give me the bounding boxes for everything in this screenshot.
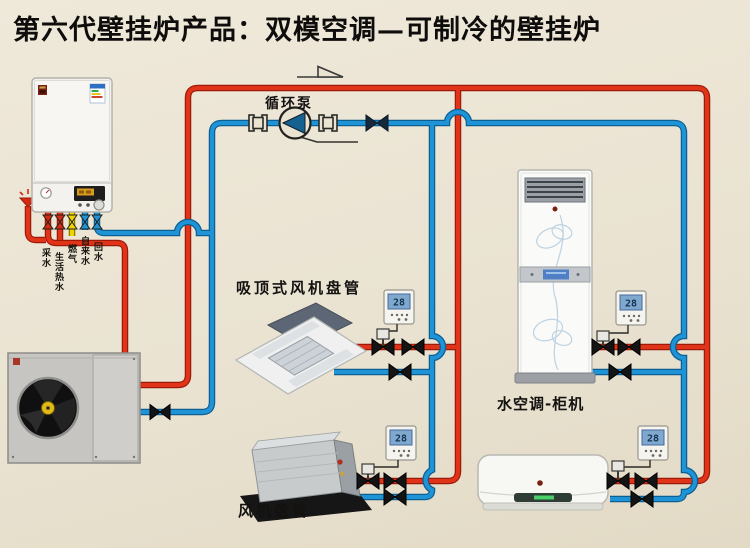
diagram-page: 第六代壁挂炉产品：双模空调—可制冷的壁挂炉 <box>0 0 750 548</box>
fan-icon <box>18 378 78 438</box>
split-logo <box>537 480 543 486</box>
split-display <box>514 493 572 502</box>
cabinet-unit-label: 水空调-柜机 <box>497 393 584 414</box>
wall-split-ac-unit <box>478 455 608 510</box>
valve-icon <box>150 405 170 420</box>
thermostat-wall-split: 28 <box>638 426 668 460</box>
heat-pump-logo <box>13 358 20 365</box>
boiler-logo <box>38 85 47 95</box>
heat-pump-unit <box>8 353 140 463</box>
thermostat-cabinet: 28 <box>616 291 646 325</box>
svg-text:28: 28 <box>625 299 637 310</box>
svg-text:28: 28 <box>647 434 659 445</box>
pump-label: 循环泵 <box>265 93 313 113</box>
svg-text:28: 28 <box>395 434 407 445</box>
thermostat-ducted: 28 <box>386 426 416 460</box>
flange-icon <box>319 115 337 131</box>
cabinet-logo <box>553 207 558 212</box>
cassette-unit-label: 吸顶式风机盘管 <box>236 277 362 298</box>
boiler-display <box>74 186 105 201</box>
flow-arrow-icon <box>297 67 343 78</box>
boiler-pipe-label-tap-water: 自来水 <box>79 236 88 266</box>
boiler-pipe-label-gas: 燃气 <box>66 244 75 264</box>
cabinet-ac-unit <box>515 170 595 383</box>
ducted-unit-label: 风机盘管 <box>238 500 310 521</box>
cabinet-grille <box>525 178 585 202</box>
thermostat-cassette: 28 <box>384 290 414 324</box>
boiler-unit <box>32 78 112 229</box>
boiler-connection-valves <box>43 215 102 229</box>
boiler-pipe-label-heating-supply: 采水 <box>40 248 49 268</box>
boiler-knob <box>94 200 104 210</box>
cassette-unit <box>236 303 366 394</box>
cabinet-base <box>515 373 595 383</box>
energy-label-sticker <box>90 84 105 103</box>
boiler-pipe-label-return: 回水 <box>92 242 101 262</box>
diagram-canvas: 28 28 28 28 <box>0 0 750 548</box>
boiler-pipe-label-dhw: 生活热水 <box>53 252 62 292</box>
valve-icon <box>366 115 388 131</box>
flange-icon <box>249 115 267 131</box>
svg-text:28: 28 <box>393 298 405 309</box>
cabinet-display <box>520 267 590 282</box>
